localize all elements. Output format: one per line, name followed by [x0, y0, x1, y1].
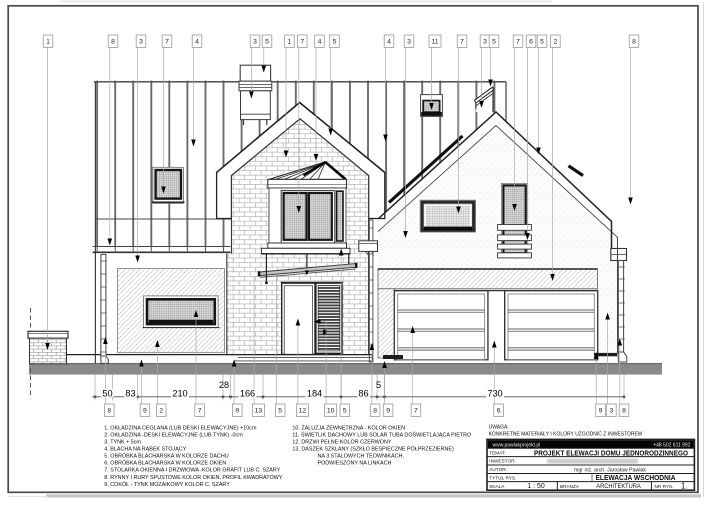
svg-text:7: 7: [300, 39, 304, 46]
svg-text:8: 8: [111, 39, 115, 46]
svg-text:8: 8: [107, 408, 111, 415]
svg-text:10: 10: [327, 408, 335, 415]
svg-text:1. OKŁADZINA CEGLANA (LUB DESK: 1. OKŁADZINA CEGLANA (LUB DESKI ELEWACYJ…: [104, 425, 257, 431]
svg-text:PODWIESZONY NA LINKACH: PODWIESZONY NA LINKACH: [318, 461, 392, 467]
svg-text:1.: 1.: [681, 482, 688, 491]
svg-text:28: 28: [219, 380, 229, 390]
svg-text:13: 13: [255, 408, 263, 415]
svg-text:ELEWACJA WSCHODNIA: ELEWACJA WSCHODNIA: [596, 473, 676, 482]
svg-text:PROJEKT ELEWACJI DOMU JEDNOROD: PROJEKT ELEWACJI DOMU JEDNORODZINNEGO: [534, 448, 688, 457]
svg-text:8. RYNNY I RURY SPUSTOWE KOLOR: 8. RYNNY I RURY SPUSTOWE KOLOR OKIEN, PR…: [104, 475, 282, 481]
svg-text:BRANŻA: BRANŻA: [560, 483, 580, 489]
svg-text:5: 5: [376, 380, 381, 390]
svg-text:5: 5: [492, 39, 496, 46]
svg-text:12. DRZWI PEŁNE KOLOR CZERWONY: 12. DRZWI PEŁNE KOLOR CZERWONY: [292, 440, 391, 446]
svg-text:TEMAT:: TEMAT:: [489, 450, 505, 455]
svg-text:9: 9: [143, 408, 147, 415]
svg-text:9: 9: [235, 408, 239, 415]
svg-text:KONKRETNE MATERIAŁY I KOLORY U: KONKRETNE MATERIAŁY I KOLORY UZGODNIĆ Z …: [489, 430, 642, 437]
svg-text:6. OBRÓBKA BLACHARSKA W KOLORZ: 6. OBRÓBKA BLACHARSKA W KOLORZE OKIEN: [104, 460, 226, 467]
svg-text:5: 5: [265, 39, 269, 46]
svg-text:6: 6: [497, 408, 501, 415]
svg-text:3: 3: [407, 39, 411, 46]
svg-text:730: 730: [487, 389, 502, 399]
svg-text:5: 5: [540, 39, 544, 46]
svg-text:7: 7: [165, 39, 169, 46]
svg-text:13. DASZEK SZKLANY (SZKŁO BESP: 13. DASZEK SZKLANY (SZKŁO BESPIECZNE PÓŁ…: [292, 446, 454, 453]
svg-text:5: 5: [333, 39, 337, 46]
svg-text:1 : 50: 1 : 50: [527, 483, 545, 490]
svg-text:9. COKÓŁ - TYNK MOZAIKOWY KOLO: 9. COKÓŁ - TYNK MOZAIKOWY KOLOR C. SZARY: [104, 481, 230, 488]
svg-text:2: 2: [554, 39, 558, 46]
svg-text:86: 86: [358, 389, 368, 399]
svg-text:4: 4: [387, 39, 391, 46]
svg-text:AUTOR:: AUTOR:: [489, 467, 507, 472]
svg-text:TYTUŁ RYS.: TYTUŁ RYS.: [489, 475, 516, 480]
svg-text:8: 8: [622, 408, 626, 415]
svg-text:7: 7: [516, 39, 520, 46]
svg-text:3: 3: [139, 39, 143, 46]
svg-text:4: 4: [195, 39, 199, 46]
svg-text:8: 8: [373, 408, 377, 415]
svg-text:3. TYNK + 5cm: 3. TYNK + 5cm: [104, 440, 141, 446]
svg-text:8: 8: [632, 39, 636, 46]
svg-text:2. OKŁADZINA -DESKI ELEWACYJNE: 2. OKŁADZINA -DESKI ELEWACYJNE (LUB TYNK…: [104, 432, 243, 438]
svg-text:166: 166: [240, 389, 255, 399]
svg-text:11: 11: [431, 39, 438, 46]
svg-text:ARCHITEKTURA: ARCHITEKTURA: [596, 483, 641, 490]
svg-text:210: 210: [172, 389, 187, 399]
svg-text:9: 9: [386, 408, 390, 415]
svg-text:3: 3: [610, 408, 614, 415]
svg-text:NR RYS.: NR RYS.: [655, 484, 674, 489]
svg-text:7. STOLARKA OKIENNA I DRZWIOWA: 7. STOLARKA OKIENNA I DRZWIOWA -KOLOR GR…: [104, 468, 280, 474]
svg-text:3: 3: [253, 39, 257, 46]
svg-text:50: 50: [102, 389, 112, 399]
svg-text:UWAGA:: UWAGA:: [489, 425, 509, 431]
svg-text:INWESTOR:: INWESTOR:: [489, 459, 515, 464]
svg-text:7: 7: [198, 408, 202, 415]
svg-text:83: 83: [125, 389, 135, 399]
svg-text:1: 1: [288, 39, 292, 46]
svg-text:3: 3: [483, 39, 487, 46]
svg-text:7: 7: [460, 39, 464, 46]
svg-text:12: 12: [299, 408, 307, 415]
svg-text:2: 2: [159, 408, 163, 415]
svg-text:4: 4: [318, 39, 322, 46]
svg-text:NA 3 STALOWYCH TEOWNIKACH,: NA 3 STALOWYCH TEOWNIKACH,: [318, 454, 405, 460]
svg-text:5: 5: [278, 408, 282, 415]
svg-text:6: 6: [529, 39, 533, 46]
svg-text:9: 9: [599, 408, 603, 415]
svg-text:SKALA: SKALA: [489, 484, 505, 489]
svg-text:4. BLACHA NA RĄBEK STOJĄCY: 4. BLACHA NA RĄBEK STOJĄCY: [104, 447, 186, 453]
svg-text:11. ŚWIETLIK DACHOWY LUB SOLAR: 11. ŚWIETLIK DACHOWY LUB SOLAR TUBA DOŚW…: [292, 430, 471, 438]
svg-text:1: 1: [46, 39, 50, 46]
svg-text:5: 5: [343, 408, 347, 415]
svg-text:184: 184: [307, 389, 322, 399]
svg-text:10. ŻALUZJA ZEWNĘTRZNA - KOLOR: 10. ŻALUZJA ZEWNĘTRZNA - KOLOR OKIEN: [292, 424, 405, 431]
svg-text:7: 7: [414, 408, 418, 415]
svg-text:5. OBRÓBKA BLACHARSKA W KOLORZ: 5. OBRÓBKA BLACHARSKA W KOLORZE DACHU: [104, 453, 228, 460]
